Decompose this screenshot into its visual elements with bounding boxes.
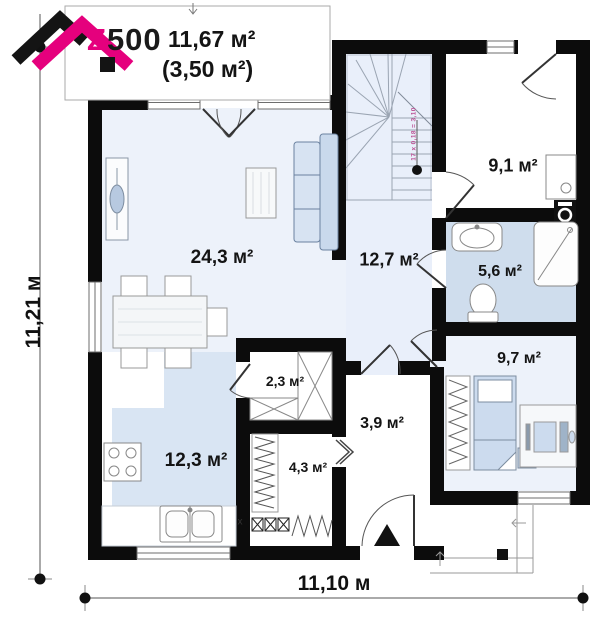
- window-left: [89, 282, 101, 352]
- room-label-pantry: 2,3 м²: [266, 373, 304, 389]
- room-label-living: 24,3 м²: [191, 247, 254, 269]
- toilet: [468, 284, 498, 322]
- window-kitchen: [137, 547, 230, 559]
- logo-brand: Z500: [87, 22, 162, 58]
- shower: [534, 222, 578, 286]
- logo-square-icon: [100, 57, 115, 72]
- study-counter: [546, 155, 576, 199]
- kitchen-sink: [160, 506, 222, 542]
- wardrobe: [446, 376, 470, 470]
- boiler-appliance: [554, 200, 576, 224]
- desk: [520, 405, 576, 467]
- room-label-hall: 12,7 м²: [359, 250, 418, 271]
- utility-closet: [252, 434, 278, 512]
- tv-cabinet: [106, 158, 128, 240]
- stair-dimension-note: 17 x 0,18 = 3,10: [411, 107, 418, 161]
- dishwasher-marker: x: [238, 517, 243, 528]
- coffee-table: [246, 168, 276, 218]
- room-label-bathroom: 5,6 м²: [478, 263, 522, 281]
- floor-plan-drawing: [0, 0, 614, 626]
- porch: [430, 505, 533, 573]
- room-label-room: 9,1 м²: [488, 156, 537, 177]
- room-label-utility: 4,3 м²: [289, 459, 327, 475]
- dimension-width-label: 11,10 м: [298, 572, 371, 596]
- washing-machines: [252, 518, 289, 531]
- logo-area-secondary: (3,50 м²): [162, 56, 253, 83]
- room-label-entry: 3,9 м²: [360, 415, 404, 433]
- room-label-kitchen: 12,3 м²: [165, 450, 228, 472]
- stove: [104, 443, 141, 481]
- floor-plan-canvas: Z500 11,67 м² (3,50 м²) 24,3 м² 12,7 м² …: [0, 0, 614, 626]
- sofa: [294, 134, 338, 250]
- room-label-bedroom: 9,7 м²: [497, 350, 541, 368]
- window-top-right: [487, 41, 514, 53]
- dimension-height-label: 11,21 м: [22, 276, 46, 349]
- logo-area-main: 11,67 м²: [168, 26, 255, 53]
- window-bedroom: [518, 492, 570, 504]
- bathroom-sink: [452, 223, 502, 251]
